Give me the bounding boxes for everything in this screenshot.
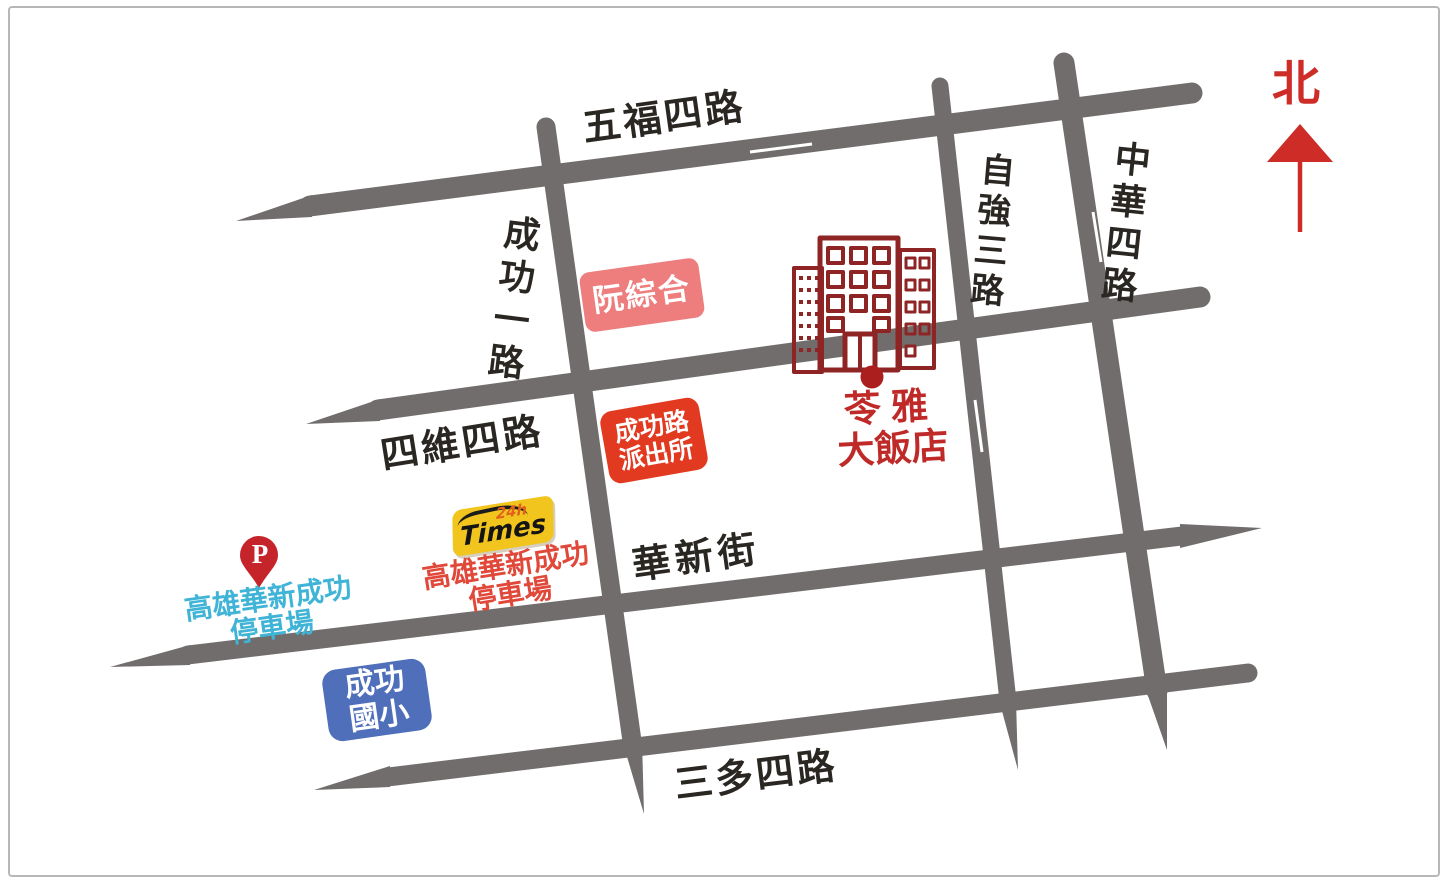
parking-pin-letter: P [247,539,273,570]
compass-north-label: 北 [1272,60,1320,108]
hotel-location-dot [861,366,884,389]
location-map: 五福四路 四維四路 華新街 三多四路 成功一路 自強三路 中華四路 北 阮綜合 … [0,0,1448,883]
school-badge-label: 成功國小 [343,663,412,738]
map-graphics [0,0,1448,883]
police-badge-label: 成功路派出所 [612,406,696,474]
school-line2: 國小 [347,695,411,738]
school-badge: 成功國小 [320,657,433,743]
hotel-name: 苓雅 大飯店 [810,384,974,474]
hospital-badge-label: 阮綜合 [591,271,694,319]
hotel-name-line2: 大飯店 [812,425,974,474]
hotel-building-icon [794,238,934,372]
road-siwei4 [306,297,1200,424]
north-arrow-icon [1267,124,1333,232]
